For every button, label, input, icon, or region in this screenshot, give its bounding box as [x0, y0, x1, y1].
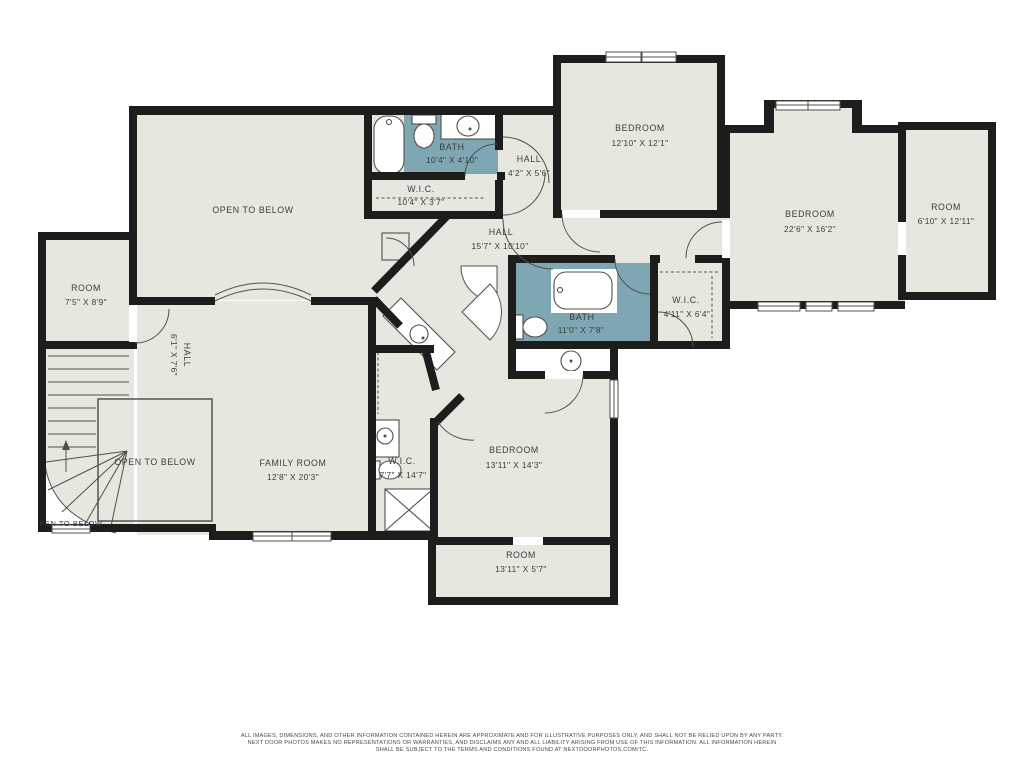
- footer-line: NEXT DOOR PHOTOS MAKES NO REPRESENTATION…: [0, 740, 1024, 747]
- bathtub-2-icon: [551, 269, 617, 313]
- room-label: ROOM: [931, 202, 961, 212]
- room-label: BEDROOM: [489, 445, 539, 455]
- sink-counter-icon: [441, 113, 498, 139]
- room-label: FAMILY ROOM: [260, 458, 327, 468]
- bathtub-icon: [374, 116, 404, 174]
- room-label: ROOM: [506, 550, 536, 560]
- shower-box-icon: [385, 489, 433, 531]
- room-label: BEDROOM: [615, 123, 665, 133]
- room-label: ROOM: [71, 283, 101, 293]
- room-dims: 22'6" X 16'2": [784, 224, 836, 234]
- room-dims: 13'11" X 5'7": [495, 564, 546, 574]
- room-label: OPEN TO BELOW: [212, 205, 293, 215]
- room-label: OPEN TO BELOW: [114, 457, 195, 467]
- room-dims: 11'0" X 7'8": [558, 325, 604, 335]
- room-label: BATH: [439, 142, 464, 152]
- room-label: W.I.C.: [407, 184, 435, 194]
- room-dims: 4'11" X 6'4": [664, 309, 710, 319]
- room-dims: 7'5" X 8'9": [65, 297, 107, 307]
- floor-plan-page: OPEN TO BELOW BATH 10'4" X 4'10" W.I.C. …: [0, 0, 1024, 768]
- room-dims: 6'10" X 12'11": [918, 216, 975, 226]
- room-label: PEN TO BELOW: [39, 519, 102, 528]
- room-dims: 12'10" X 12'1": [611, 138, 668, 148]
- toilet-2-icon: [514, 315, 547, 339]
- room-dims: 7'7" X 14'7": [379, 470, 426, 480]
- room-dims: 10'4" X 3'7": [397, 197, 444, 207]
- room-dims: 13'11" X 14'3": [486, 460, 543, 470]
- room-label: W.I.C.: [388, 456, 416, 466]
- room-label: BATH: [569, 312, 594, 322]
- footer-disclaimer: ALL IMAGES, DIMENSIONS, AND OTHER INFORM…: [0, 733, 1024, 754]
- room-label: BEDROOM: [785, 209, 835, 219]
- toilet-icon: [412, 115, 436, 148]
- room-dims: 12'8" X 20'3": [267, 472, 319, 482]
- footer-line: ALL IMAGES, DIMENSIONS, AND OTHER INFORM…: [0, 733, 1024, 740]
- room-dims: 10'4" X 4'10": [426, 155, 478, 165]
- room-label: W.I.C.: [672, 295, 700, 305]
- vanity-sink-icon: [372, 420, 399, 457]
- floor-plan-canvas: OPEN TO BELOW BATH 10'4" X 4'10" W.I.C. …: [0, 0, 1024, 768]
- room-label: HALL: [517, 154, 541, 164]
- room-dims: 4'2" X 5'6": [508, 168, 550, 178]
- room-dims: 15'7" X 10'10": [471, 241, 528, 251]
- room-label: HALL: [489, 227, 513, 237]
- room-dims: 6'1" X 7'6": [169, 334, 179, 376]
- footer-line: SHALL BE SUBJECT TO THE TERMS AND CONDIT…: [0, 747, 1024, 754]
- room-label: HALL: [182, 343, 192, 367]
